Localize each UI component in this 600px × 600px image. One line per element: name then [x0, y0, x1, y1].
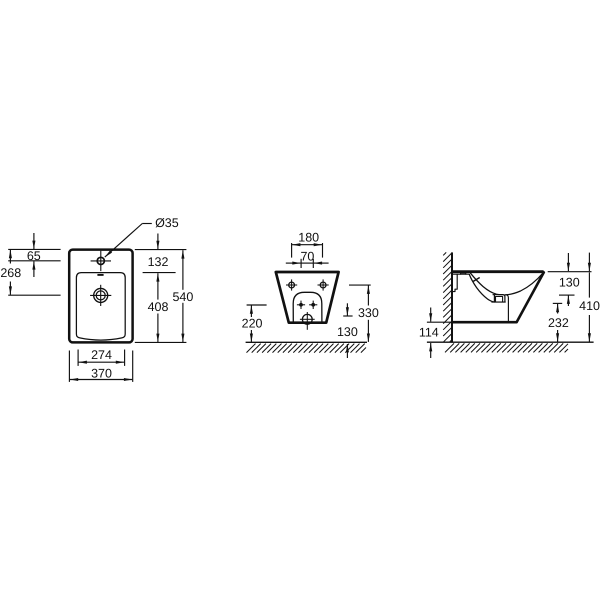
- svg-text:130: 130: [337, 325, 358, 339]
- svg-text:220: 220: [242, 316, 263, 330]
- svg-text:232: 232: [548, 316, 569, 330]
- svg-text:408: 408: [148, 300, 169, 314]
- svg-text:410: 410: [579, 299, 600, 313]
- svg-text:540: 540: [172, 290, 193, 304]
- svg-text:268: 268: [0, 266, 21, 280]
- svg-text:330: 330: [358, 306, 379, 320]
- svg-text:132: 132: [148, 255, 169, 269]
- svg-text:180: 180: [298, 231, 319, 245]
- svg-text:70: 70: [300, 250, 314, 264]
- svg-text:114: 114: [419, 326, 439, 340]
- svg-text:274: 274: [91, 348, 112, 362]
- svg-text:370: 370: [91, 366, 112, 380]
- svg-text:Ø35: Ø35: [155, 216, 179, 230]
- svg-text:130: 130: [559, 275, 580, 289]
- svg-text:65: 65: [27, 249, 41, 263]
